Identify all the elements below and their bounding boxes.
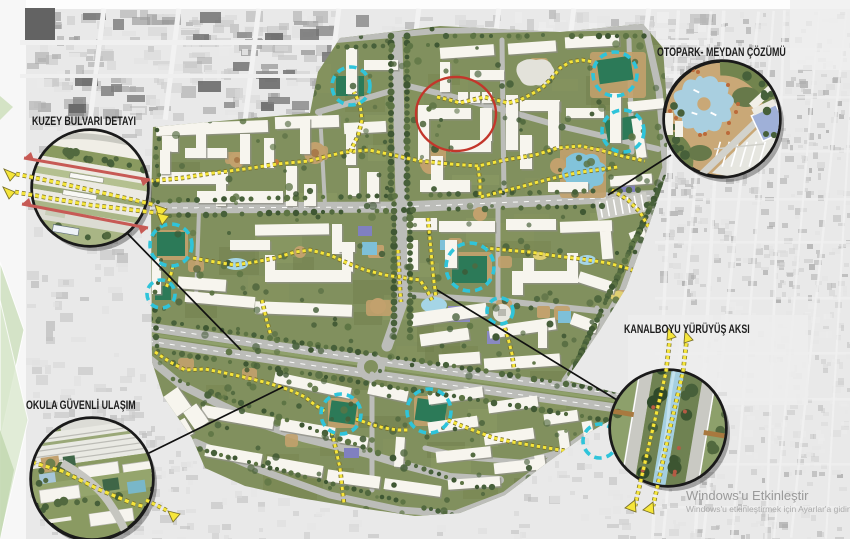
svg-text:OKULA GÜVENLİ ULAŞIM: OKULA GÜVENLİ ULAŞIM: [26, 398, 136, 413]
svg-text:OTOPARK- MEYDAN ÇÖZÜMÜ: OTOPARK- MEYDAN ÇÖZÜMÜ: [657, 45, 786, 60]
svg-text:Windows'u etkinleştirmek için: Windows'u etkinleştirmek için Ayarlar'a …: [686, 504, 850, 514]
svg-text:KANALBOYU YÜRÜYÜŞ AKSI: KANALBOYU YÜRÜYÜŞ AKSI: [624, 322, 750, 337]
svg-text:KUZEY BULVARI DETAYI: KUZEY BULVARI DETAYI: [32, 115, 136, 129]
svg-text:Windows'u Etkinleştir: Windows'u Etkinleştir: [686, 488, 809, 503]
